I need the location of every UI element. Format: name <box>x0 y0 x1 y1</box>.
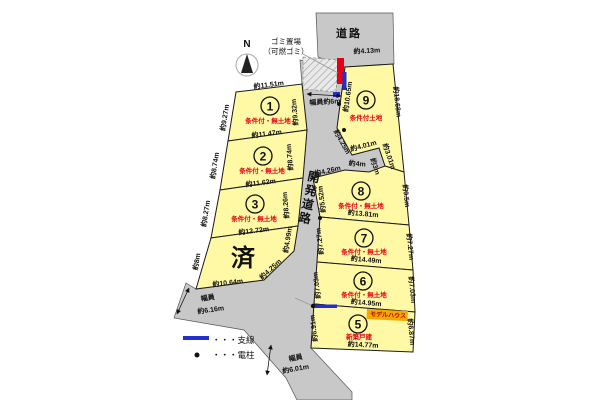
pole-dot-bottom <box>311 304 315 308</box>
plot-8-status: 条件付・無土地 <box>338 201 384 210</box>
legend-wire-sample <box>183 336 209 340</box>
legend-pole-sample <box>195 353 200 358</box>
plot-8-number: 8 <box>358 185 365 199</box>
slope-hatch <box>303 57 338 92</box>
plot-6-status: 条件付・無土地 <box>341 290 387 299</box>
plot-9-status: 条件付土地 <box>350 113 383 122</box>
plot-2-status: 条件付・無土地 <box>239 166 285 175</box>
legend-pole-label: ・・・電柱 <box>212 350 255 360</box>
pole-dot-plot9 <box>342 128 346 132</box>
plot-7-status: 条件付・無土地 <box>341 247 387 256</box>
site-plan-map: N ゴミ置場 （可燃ゴミ） 道路 約4.13m 幅員約6m 幅員 約6.16m … <box>0 0 600 400</box>
plot-3-status: 条件付・無土地 <box>231 214 277 223</box>
top-road-shape <box>316 13 394 67</box>
plot-1-number: 1 <box>267 100 274 114</box>
sold-plot-label: 済 <box>231 244 256 272</box>
compass-n-label: N <box>243 39 250 50</box>
garbage-label-line1: ゴミ置場 <box>271 36 301 46</box>
plot-1-status: 条件付・無土地 <box>245 116 291 125</box>
plot-9-number: 9 <box>363 94 370 108</box>
plot-6-number: 6 <box>360 275 367 289</box>
sold-plot-left-measure: 約8m <box>191 252 203 270</box>
plot-3-left-measure: 約8.27m <box>199 200 212 228</box>
plot-3-number: 3 <box>252 198 259 212</box>
top-road-label: 道路 <box>336 26 362 40</box>
plot-2-number: 2 <box>260 150 267 164</box>
plot-5-number: 5 <box>355 318 362 332</box>
wire-marker-bottom <box>314 305 337 309</box>
plot-1-left-measure: 約9.27m <box>218 104 231 132</box>
plot-5-status: 新築戸建 <box>346 332 373 341</box>
plot-2-left-measure: 約8.74m <box>208 152 221 180</box>
garbage-label-line2: （可燃ゴミ） <box>264 46 309 56</box>
legend-wire-label: ・・・支線 <box>212 335 255 345</box>
plot-7-number: 7 <box>361 232 368 246</box>
pole-dot-mid <box>318 216 322 220</box>
